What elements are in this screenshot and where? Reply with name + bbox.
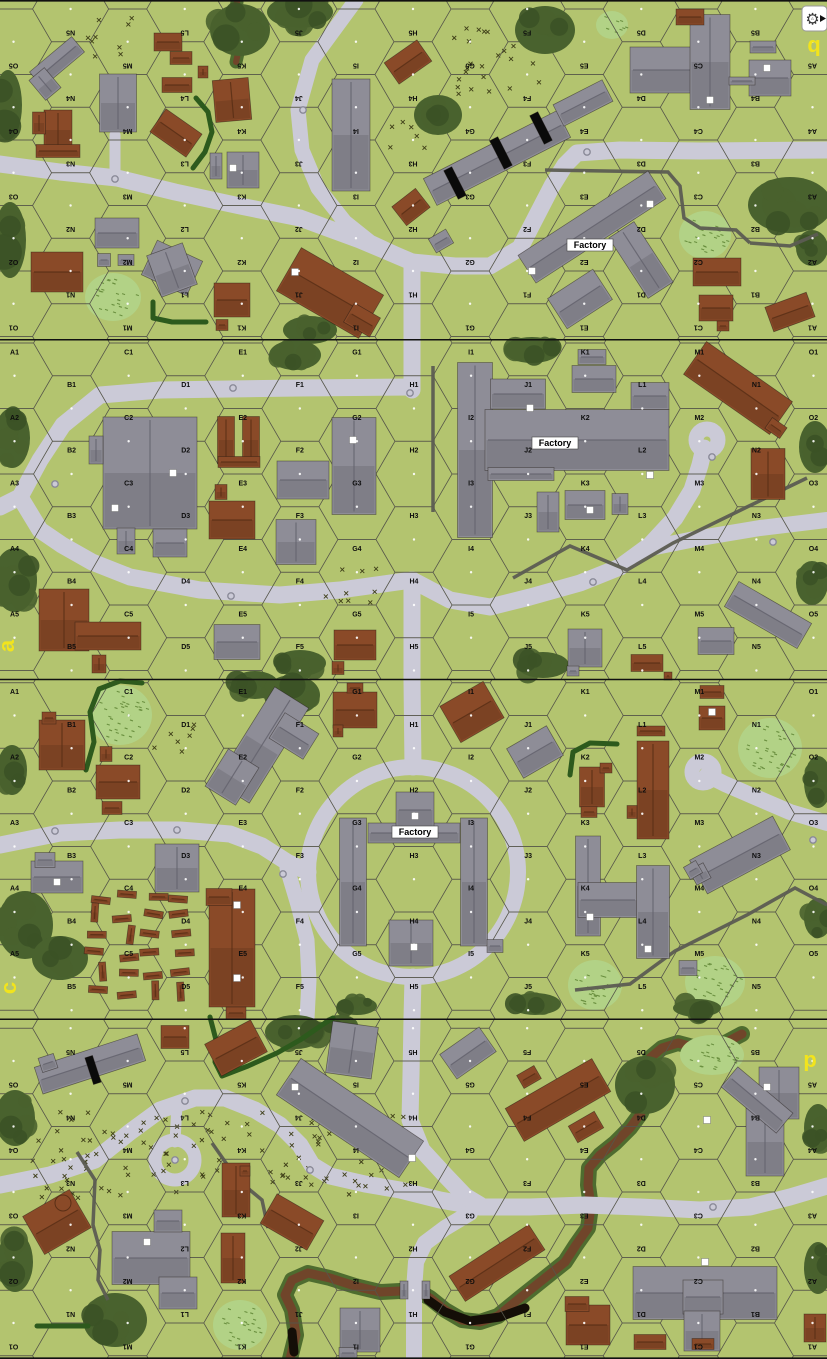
hex-label: E1 [238, 689, 247, 696]
woods-clump [814, 1244, 827, 1257]
hex-center-dot [299, 407, 301, 409]
hex-label: J1 [524, 722, 532, 729]
stairwell-marker [704, 1117, 711, 1124]
hex-label: L5 [181, 29, 189, 36]
hex-center-dot [469, 106, 471, 108]
hex-center-dot [698, 714, 700, 716]
hex-center-dot [755, 1009, 757, 1011]
hex-label: I4 [468, 886, 474, 893]
hex-center-dot [241, 303, 243, 305]
hex-label: O1 [9, 1343, 18, 1350]
hex-center-dot [13, 911, 15, 913]
hex-center-dot [697, 303, 699, 305]
hex-label: B1 [67, 722, 76, 729]
hex-label: D5 [181, 644, 190, 651]
hex-label: M3 [694, 820, 704, 827]
hex-center-dot [755, 473, 757, 475]
hex-label: D1 [637, 291, 646, 298]
hex-center-dot [583, 1322, 585, 1324]
hex-label: D2 [637, 225, 646, 232]
hex-label: C5 [124, 951, 133, 958]
hex-center-dot [811, 172, 813, 174]
hex-label: J5 [295, 1048, 303, 1055]
hex-center-dot [812, 440, 814, 442]
hex-label: M4 [694, 886, 704, 893]
hex-label: G2 [465, 258, 474, 265]
hex-center-dot [583, 172, 585, 174]
hex-label: G1 [465, 1343, 474, 1350]
hex-label: E3 [238, 480, 247, 487]
wooden-building [212, 78, 252, 123]
hex-label: I3 [468, 480, 474, 487]
game-map-canvas[interactable]: A1A2A3A4A5B1B2B3B4B5C1C2C3C4C5D1D2D3D4D5… [0, 0, 827, 1359]
stairwell-marker [350, 437, 357, 444]
hex-label: F4 [523, 94, 531, 101]
hex-label: M4 [694, 546, 704, 553]
hex-label: G5 [352, 611, 361, 618]
stone-building [537, 492, 559, 532]
hex-center-dot [641, 538, 643, 540]
hex-center-dot [412, 270, 414, 272]
hex-label: L5 [638, 984, 646, 991]
hex-center-dot [184, 1289, 186, 1291]
stairwell-marker [709, 709, 716, 716]
hex-label: M1 [694, 689, 704, 696]
wooden-building [87, 931, 106, 938]
hex-center-dot [13, 637, 15, 639]
hex-label: L3 [181, 1179, 189, 1186]
wooden-building [581, 807, 597, 818]
hex-center-dot [242, 440, 244, 442]
hex-center-dot [184, 270, 186, 272]
hex-center-dot [127, 714, 129, 716]
stairwell-marker [234, 975, 241, 982]
stone-building [389, 920, 433, 966]
hex-center-dot [241, 1322, 243, 1324]
stone-building [488, 468, 554, 481]
hex-center-dot [13, 714, 15, 716]
wooden-building [84, 947, 104, 956]
hex-label: O4 [809, 886, 818, 893]
hex-label: O5 [9, 61, 18, 68]
hex-label: F5 [296, 644, 304, 651]
hex-label: B4 [751, 94, 760, 101]
hex-label: L4 [638, 918, 646, 925]
hex-center-dot [754, 1158, 756, 1160]
stairwell-marker [230, 165, 237, 172]
woods-clump [4, 761, 24, 781]
hex-center-dot [469, 1256, 471, 1258]
hex-label: G3 [465, 192, 474, 199]
hex-center-dot [70, 604, 72, 606]
hex-label: B1 [751, 291, 760, 298]
hex-label: O4 [9, 127, 18, 134]
hex-center-dot [299, 669, 301, 671]
stairwell-marker [764, 1084, 771, 1091]
hex-center-dot [413, 538, 415, 540]
hex-center-dot [127, 506, 129, 508]
wooden-building [92, 655, 106, 673]
hex-center-dot [355, 237, 357, 239]
hex-center-dot [583, 1256, 585, 1258]
road-junction-ring [228, 593, 234, 599]
hex-center-dot [126, 1322, 128, 1324]
stone-building [98, 254, 111, 267]
hex-center-dot [527, 813, 529, 815]
hex-center-dot [755, 878, 757, 880]
hex-label: K5 [581, 951, 590, 958]
hex-center-dot [355, 172, 357, 174]
hex-center-dot [584, 440, 586, 442]
hex-label: B1 [751, 1310, 760, 1317]
hex-label: K4 [581, 546, 590, 553]
hex-center-dot [469, 303, 471, 305]
road-junction-ring [710, 1204, 716, 1210]
hex-label: J1 [524, 382, 532, 389]
hex-label: O2 [9, 1277, 18, 1284]
stone-building [396, 792, 434, 828]
stone-building [631, 383, 669, 410]
stone-building [277, 461, 329, 499]
hex-label: M3 [694, 480, 704, 487]
stone-building [153, 529, 187, 557]
stone-building [100, 74, 137, 132]
hex-label: E5 [238, 611, 247, 618]
hex-label: K5 [581, 611, 590, 618]
hex-label: G5 [465, 61, 474, 68]
hex-center-dot [526, 204, 528, 206]
hex-label: E4 [238, 546, 247, 553]
hex-label: H2 [410, 787, 419, 794]
hex-center-dot [298, 1224, 300, 1226]
hex-label: E3 [238, 820, 247, 827]
wooden-building [75, 622, 141, 650]
hex-center-dot [412, 73, 414, 75]
hex-label: F4 [296, 579, 304, 586]
zoom-gear-button[interactable]: ⚙z [802, 6, 827, 31]
hex-label: D2 [637, 1244, 646, 1251]
hex-center-dot [469, 172, 471, 174]
hex-label: F5 [523, 1048, 531, 1055]
gear-z-glyph: z [811, 18, 814, 24]
hex-center-dot [184, 139, 186, 141]
hex-label: C5 [694, 1081, 703, 1088]
hex-label: M4 [123, 127, 133, 134]
hex-center-dot [527, 747, 529, 749]
woods-clump [802, 771, 818, 787]
hex-center-dot [412, 204, 414, 206]
hex-label: I4 [468, 546, 474, 553]
hex-label: E1 [238, 349, 247, 356]
hex-center-dot [755, 407, 757, 409]
hex-center-dot [811, 1256, 813, 1258]
hex-center-dot [641, 813, 643, 815]
woods-clump [528, 997, 545, 1014]
hex-label: I2 [468, 415, 474, 422]
board-letter-c: c [0, 982, 21, 994]
hex-center-dot [184, 1093, 186, 1095]
hex-label: H2 [408, 1244, 417, 1251]
hex-label: M2 [694, 755, 704, 762]
hex-center-dot [184, 1027, 186, 1029]
hex-center-dot [697, 237, 699, 239]
hex-center-dot [242, 714, 244, 716]
wooden-building [36, 145, 80, 158]
woods-clump [14, 440, 29, 455]
woods-clump [303, 327, 316, 340]
hex-center-dot [299, 747, 301, 749]
stone-building [112, 1232, 190, 1285]
hex-center-dot [526, 1027, 528, 1029]
road-junction-ring [52, 828, 58, 834]
hex-label: G1 [352, 349, 361, 356]
stone-building [683, 1280, 723, 1314]
hex-label: F4 [523, 1113, 531, 1120]
hex-center-dot [12, 303, 14, 305]
hex-center-dot [697, 1125, 699, 1127]
road-junction-ring [810, 837, 816, 843]
woods-clump [48, 936, 72, 960]
hex-center-dot [12, 1060, 14, 1062]
hex-center-dot [13, 976, 15, 978]
hex-label: H2 [408, 225, 417, 232]
hex-label: K3 [581, 820, 590, 827]
hex-center-dot [413, 944, 415, 946]
hex-label: L3 [638, 853, 646, 860]
hex-center-dot [12, 1125, 14, 1127]
hex-label: F2 [523, 225, 531, 232]
hex-label: I2 [353, 258, 359, 265]
hex-center-dot [356, 911, 358, 913]
wooden-building [216, 320, 228, 331]
hex-center-dot [698, 780, 700, 782]
hex-label: O5 [9, 1081, 18, 1088]
hex-label: G2 [352, 415, 361, 422]
road-junction-ring [584, 149, 590, 155]
hex-label: N5 [66, 1048, 75, 1055]
hex-center-dot [298, 8, 300, 10]
hex-center-dot [755, 669, 757, 671]
hex-label: G2 [352, 755, 361, 762]
woods-clump [225, 2, 245, 22]
hex-center-dot [242, 780, 244, 782]
hex-center-dot [698, 911, 700, 913]
hex-center-dot [413, 407, 415, 409]
hex-label: J3 [524, 513, 532, 520]
hex-label: C2 [124, 415, 133, 422]
hex-label: D5 [637, 1048, 646, 1055]
board-letter-b: b [807, 35, 820, 60]
hex-label: J3 [295, 1179, 303, 1186]
hex-center-dot [185, 944, 187, 946]
hex-center-dot [126, 106, 128, 108]
hex-center-dot [70, 407, 72, 409]
hex-center-dot [754, 1224, 756, 1226]
hex-label: O3 [809, 820, 818, 827]
hex-label: A2 [808, 1277, 817, 1284]
hex-center-dot [412, 1158, 414, 1160]
hex-center-dot [812, 714, 814, 716]
wooden-building [100, 747, 112, 762]
hex-center-dot [812, 506, 814, 508]
hex-center-dot [754, 204, 756, 206]
hex-label: B3 [67, 513, 76, 520]
hex-center-dot [812, 375, 814, 377]
hex-label: N1 [752, 722, 761, 729]
hex-label: A5 [10, 611, 19, 618]
hex-center-dot [697, 172, 699, 174]
hex-center-dot [698, 976, 700, 978]
hex-center-dot [184, 1224, 186, 1226]
hex-label: G2 [465, 1277, 474, 1284]
stairwell-marker [707, 97, 714, 104]
hex-label: D5 [637, 29, 646, 36]
hex-center-dot [242, 571, 244, 573]
wooden-building [209, 889, 255, 1007]
hex-center-dot [70, 473, 72, 475]
hex-label: H5 [408, 1048, 417, 1055]
wooden-building [96, 765, 140, 799]
hex-label: A3 [10, 480, 19, 487]
hex-label: O3 [9, 192, 18, 199]
hex-center-dot [640, 8, 642, 10]
hex-center-dot [470, 637, 472, 639]
hex-label: D3 [181, 513, 190, 520]
hex-center-dot [70, 813, 72, 815]
woods-clump [18, 924, 41, 947]
wooden-building [149, 893, 168, 900]
hex-label: H4 [410, 579, 419, 586]
hex-label: C1 [694, 323, 703, 330]
woods-clump [92, 1319, 118, 1345]
hex-label: L4 [181, 94, 189, 101]
road-junction-ring [280, 871, 286, 877]
hex-center-dot [13, 845, 15, 847]
hex-label: A3 [10, 820, 19, 827]
gully-deep [292, 1332, 294, 1352]
hex-center-dot [298, 139, 300, 141]
hex-label: N2 [752, 448, 761, 455]
road-junction-ring [770, 539, 776, 545]
hex-label: J2 [524, 448, 532, 455]
hex-label: K4 [237, 1146, 246, 1153]
hex-label: L1 [638, 382, 646, 389]
woods-clump [0, 1116, 22, 1139]
hex-label: F3 [523, 160, 531, 167]
hex-center-dot [299, 473, 301, 475]
stairwell-marker [170, 470, 177, 477]
hex-label: D1 [181, 382, 190, 389]
hex-label: I1 [468, 349, 474, 356]
woods-clump [363, 998, 372, 1007]
woods-clump [9, 575, 30, 596]
hex-label: A5 [10, 951, 19, 958]
hex-center-dot [298, 204, 300, 206]
hex-label: H5 [408, 29, 417, 36]
hex-center-dot [413, 473, 415, 475]
hex-label: K3 [237, 192, 246, 199]
stairwell-marker [587, 914, 594, 921]
road-junction-ring [407, 390, 413, 396]
hex-center-dot [299, 1009, 301, 1011]
hex-center-dot [241, 1256, 243, 1258]
stone-building [612, 494, 628, 515]
hex-label: J3 [295, 160, 303, 167]
hex-center-dot [754, 73, 756, 75]
road-junction-ring [300, 107, 306, 113]
hex-label: L4 [181, 1113, 189, 1120]
hex-label: K1 [581, 349, 590, 356]
hex-label: L2 [181, 225, 189, 232]
hex-label: A1 [10, 689, 19, 696]
hex-label: C5 [124, 611, 133, 618]
stairwell-marker [292, 269, 299, 276]
hex-center-dot [355, 1322, 357, 1324]
hex-label: M2 [123, 1277, 133, 1284]
hex-center-dot [69, 139, 71, 141]
hex-label: D2 [181, 787, 190, 794]
stone-building [487, 940, 503, 953]
hex-center-dot [298, 1289, 300, 1291]
hex-center-dot [526, 1158, 528, 1160]
woods-clump [524, 345, 545, 366]
hex-label: B3 [751, 1179, 760, 1186]
wooden-building [102, 802, 122, 815]
hex-center-dot [641, 604, 643, 606]
hex-center-dot [13, 440, 15, 442]
hex-center-dot [812, 780, 814, 782]
hex-label: C3 [124, 820, 133, 827]
hex-label: L2 [638, 787, 646, 794]
stairwell-marker [292, 1084, 299, 1091]
hex-label: L5 [181, 1048, 189, 1055]
hex-center-dot [527, 669, 529, 671]
wooden-building [600, 763, 612, 773]
hex-center-dot [298, 1027, 300, 1029]
hex-center-dot [526, 1093, 528, 1095]
wooden-building [117, 991, 137, 1000]
hex-center-dot [698, 845, 700, 847]
hex-center-dot [697, 1060, 699, 1062]
hex-label: J5 [524, 644, 532, 651]
hex-label: G4 [352, 886, 361, 893]
hex-label: L2 [638, 448, 646, 455]
stone-building [491, 379, 546, 409]
hex-label: L1 [181, 1310, 189, 1317]
hex-label: O4 [809, 546, 818, 553]
hex-label: F3 [523, 1179, 531, 1186]
hex-label: M2 [123, 258, 133, 265]
hex-label: I5 [468, 611, 474, 618]
hex-center-dot [241, 41, 243, 43]
wooden-building [333, 692, 377, 728]
factory-label: Factory [539, 438, 572, 448]
hex-label: H5 [410, 984, 419, 991]
road-junction-ring [182, 1098, 188, 1104]
stone-building [461, 818, 488, 946]
road-junction-ring [172, 1157, 178, 1163]
stairwell-marker [647, 472, 654, 479]
hex-label: C3 [694, 1212, 703, 1219]
hex-center-dot [356, 780, 358, 782]
hex-label: I4 [353, 1146, 359, 1153]
hex-label: H1 [408, 291, 417, 298]
stone-building [422, 1281, 430, 1299]
woods-clump [285, 354, 302, 371]
hex-center-dot [641, 407, 643, 409]
hex-label: H3 [408, 160, 417, 167]
hex-center-dot [356, 714, 358, 716]
